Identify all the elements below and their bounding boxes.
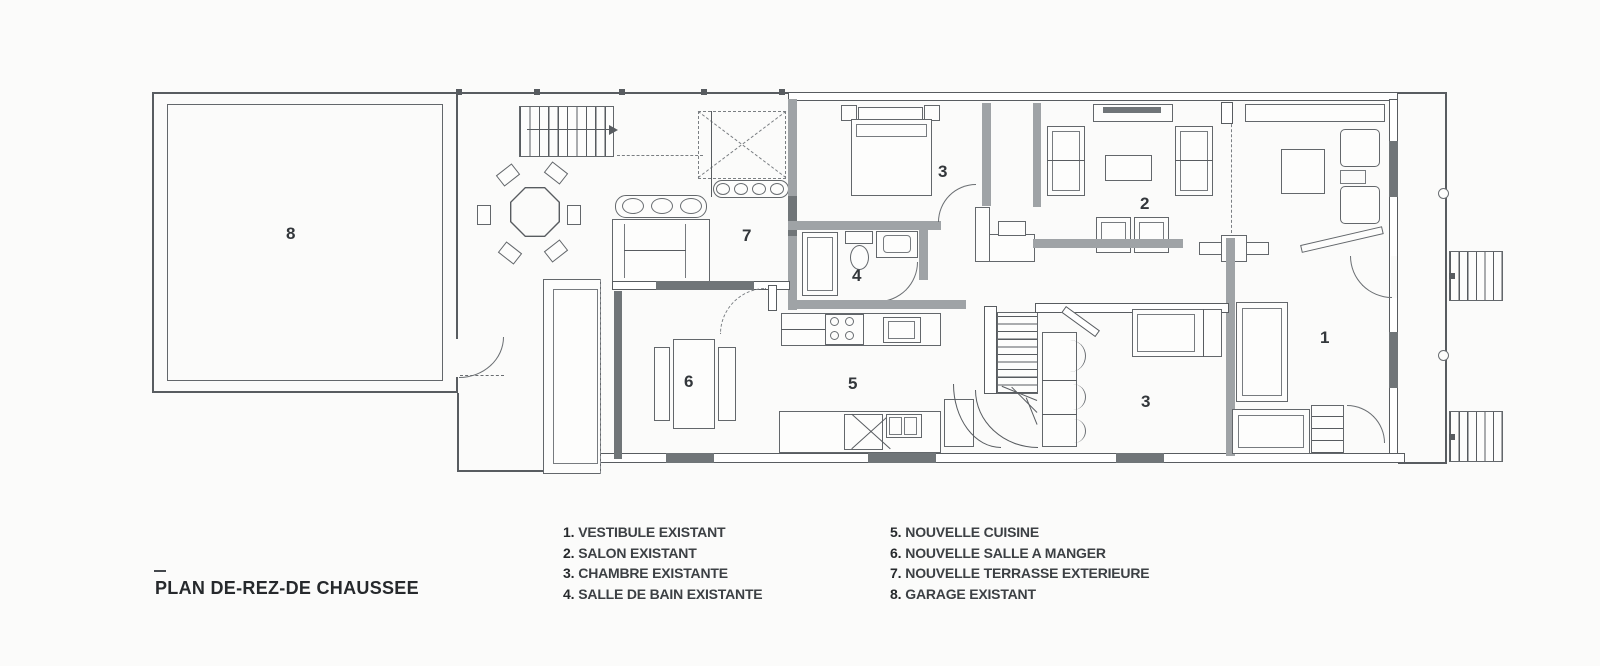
legend-item: 7.NOUVELLE TERRASSE EXTERIEURE <box>890 563 1149 584</box>
stairs-arrow-icon <box>609 125 618 135</box>
dining-chair <box>654 347 670 421</box>
stairs-direction-line <box>527 129 611 130</box>
entry-steps <box>1311 405 1344 454</box>
room-label-kitchen: 5 <box>848 374 857 394</box>
legend-item: 1.VESTIBULE EXISTANT <box>563 522 762 543</box>
title-dash <box>154 570 166 572</box>
legend-item: 4.SALLE DE BAIN EXISTANTE <box>563 584 762 605</box>
room-label-dining: 6 <box>684 372 693 392</box>
bathroom-door-arc <box>878 262 918 302</box>
room-label-bedroom-bottom: 3 <box>1141 392 1150 412</box>
sofa-cushion <box>1340 186 1380 224</box>
entry-door-arc <box>1347 405 1385 443</box>
sofa-cushion <box>1340 129 1380 167</box>
dining-door-arc <box>720 288 766 334</box>
side-table <box>1281 149 1325 194</box>
legend-item: 2.SALON EXISTANT <box>563 543 762 564</box>
legend-column-1: 1.VESTIBULE EXISTANT 2.SALON EXISTANT 3.… <box>563 522 762 604</box>
credenza <box>1245 104 1385 122</box>
dishwasher <box>844 414 883 450</box>
angled-wall <box>1300 226 1384 253</box>
room-label-bedroom-top: 3 <box>938 162 947 182</box>
porch-door-arc <box>1350 256 1392 298</box>
page-title: PLAN DE-REZ-DE CHAUSSEE <box>155 578 419 599</box>
exterior-stairs-right-upper <box>1449 251 1503 301</box>
legend-column-2: 5.NOUVELLE CUISINE 6.NOUVELLE SALLE A MA… <box>890 522 1149 604</box>
dining-chair <box>718 347 736 421</box>
legend-item: 5.NOUVELLE CUISINE <box>890 522 1149 543</box>
room-label-vestibule: 1 <box>1320 328 1329 348</box>
garage-door-arc <box>459 337 504 378</box>
room-label-bathroom: 4 <box>852 266 861 286</box>
dining-table <box>673 339 715 429</box>
exterior-stairs-right-lower <box>1449 411 1503 462</box>
toilet-tank <box>845 231 873 244</box>
room-label-terrace: 7 <box>742 226 751 246</box>
open-plan-divider <box>1231 104 1232 238</box>
legend-item: 8.GARAGE EXISTANT <box>890 584 1149 605</box>
room-label-garage: 8 <box>286 224 295 244</box>
room-label-salon: 2 <box>1140 194 1149 214</box>
bedroom-top-door-arc <box>938 184 976 222</box>
stair-flight <box>997 312 1038 394</box>
porch-column <box>1438 350 1449 361</box>
porch-column <box>1438 188 1449 199</box>
coffee-table <box>1105 155 1152 181</box>
legend-item: 6.NOUVELLE SALLE A MANGER <box>890 543 1149 564</box>
legend-item: 3.CHAMBRE EXISTANTE <box>563 563 762 584</box>
floor-plan-page: 8 <box>0 0 1600 666</box>
